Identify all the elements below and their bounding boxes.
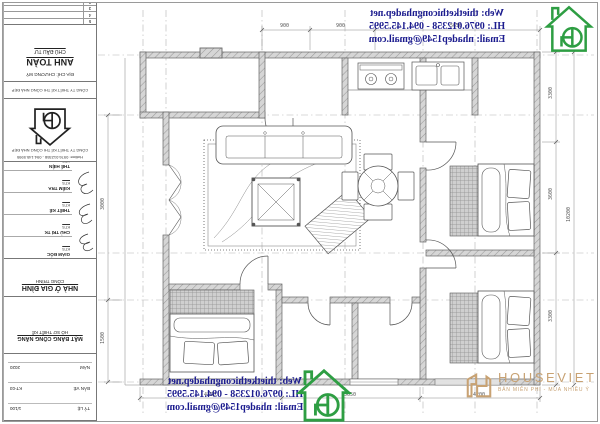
signature-role: GIÁM ĐỐC bbox=[6, 252, 70, 257]
revision-number: 2 bbox=[83, 3, 96, 5]
porch-edge bbox=[125, 58, 140, 385]
dim-label: 3600 bbox=[548, 188, 554, 200]
dim-label: 1500 bbox=[100, 332, 106, 344]
category-label: CÔNG TRÌNH bbox=[4, 278, 96, 284]
signature-row: CHỦ TRÌ TK KTS bbox=[4, 214, 72, 236]
investor-name: ANH TOÀN bbox=[4, 57, 96, 67]
logo-caption: CÔNG TY THIẾT KẾ THI CÔNG NHÀ ĐẸP bbox=[4, 147, 96, 154]
company-bar: CÔNG TY THIẾT KẾ THI CÔNG NHÀ ĐẸP bbox=[4, 82, 96, 99]
revision-row: 3 bbox=[4, 5, 96, 11]
revision-number: 3 bbox=[83, 6, 96, 11]
field-label: TỶ LỆ bbox=[77, 405, 90, 411]
field-value: KT-03 bbox=[10, 384, 22, 390]
drawing-name-section: MẶT BẰNG CÔNG NĂNG HỒ SƠ THIẾT KẾ bbox=[4, 297, 96, 354]
signature-row: GIÁM ĐỐC KTS bbox=[4, 236, 72, 258]
field-label: NĂM bbox=[80, 364, 90, 370]
coffee-table bbox=[252, 178, 300, 226]
signature-role: KIỂM TRA bbox=[6, 186, 70, 191]
signature-row: KIỂM TRA KTS bbox=[4, 170, 72, 192]
revision-table: 5 4 3 2 1 NỘI DUNG SỬA ĐỔI bbox=[4, 3, 96, 25]
watermark-web: Web: thietkethicongnhadep.net bbox=[330, 7, 544, 20]
field-value: 1/100 bbox=[10, 405, 21, 411]
investor-address: ĐỊA CHỈ: CHƯƠNG MỸ bbox=[4, 71, 96, 77]
signature-role: THIẾT KẾ bbox=[6, 208, 70, 213]
stove-icon bbox=[358, 63, 404, 89]
field-label: BẢN VẼ bbox=[73, 384, 90, 390]
dim-label: 3300 bbox=[548, 87, 554, 99]
company-logo-section: Hotline: 0976.012358 - 094.145.5995 CÔNG… bbox=[4, 99, 96, 162]
drawing-name: MẶT BẰNG CÔNG NĂNG bbox=[4, 335, 96, 341]
revision-row: 4 bbox=[4, 11, 96, 17]
bed-2 bbox=[450, 291, 534, 363]
company-house-logo-icon bbox=[28, 107, 72, 147]
dim-label: 3300 bbox=[548, 310, 554, 322]
revision-number: 5 bbox=[83, 19, 96, 24]
title-block-fields: TỶ LỆ1/100 BẢN VẼKT-03 NĂM2020 bbox=[4, 354, 96, 421]
signature-role: CHỦ TRÌ TK bbox=[6, 230, 70, 235]
logo-caption: Hotline: 0976.012358 - 094.145.5995 bbox=[4, 154, 96, 161]
investor-label: CHỦ ĐẦU TƯ bbox=[4, 48, 96, 54]
drawing-sheet: 900 900 5650 3300 3600 3300 10200 4350 5… bbox=[0, 0, 600, 424]
revision-row: 5 bbox=[4, 18, 96, 24]
houseviet-brand: HOUSEVIET BẢN MIỄN PHÍ - MUA NHIỀU Ý bbox=[464, 371, 597, 401]
green-house-logo-icon bbox=[293, 367, 355, 424]
sink-icon bbox=[412, 62, 464, 90]
kitchen-counter bbox=[348, 62, 472, 90]
revision-row: 2 bbox=[4, 3, 96, 5]
company-name: CÔNG TY THIẾT KẾ THI CÔNG NHÀ ĐẸP bbox=[12, 87, 89, 92]
sofa bbox=[216, 126, 352, 164]
chaise bbox=[305, 190, 371, 254]
houseviet-logo-icon bbox=[464, 371, 494, 401]
watermark-hotline: HL: 0976.012358 - 094.145.5995 bbox=[330, 20, 544, 33]
project-section: NHÀ Ở GIA ĐÌNH CÔNG TRÌNH bbox=[4, 259, 96, 297]
project-name: NHÀ Ở GIA ĐÌNH bbox=[4, 284, 96, 291]
signature-scribbles-icon bbox=[72, 162, 96, 258]
field-value: 2020 bbox=[10, 364, 20, 370]
dim-label: 900 bbox=[280, 23, 289, 29]
green-house-logo-icon bbox=[544, 3, 594, 55]
revision-number: 4 bbox=[83, 12, 96, 17]
bed-3 bbox=[170, 290, 254, 372]
bed-1 bbox=[450, 164, 534, 236]
signature-row: THỂ HIỆN KTS bbox=[4, 162, 72, 170]
signature-role: THỂ HIỆN bbox=[6, 164, 70, 169]
signature-row: THIẾT KẾ KTS bbox=[4, 192, 72, 214]
investor-section: ĐỊA CHỈ: CHƯƠNG MỸ ANH TOÀN CHỦ ĐẦU TƯ bbox=[4, 25, 96, 82]
houseviet-tagline: BẢN MIỄN PHÍ - MUA NHIỀU Ý bbox=[498, 387, 597, 393]
watermark-top: Web: thietkethicongnhadep.net HL: 0976.0… bbox=[330, 7, 544, 47]
watermark-email: Email: nhadep1549@gmail.com bbox=[330, 33, 544, 46]
dim-label: 10200 bbox=[566, 207, 572, 222]
houseviet-name: HOUSEVIET bbox=[498, 371, 597, 384]
signature-table: GIÁM ĐỐC KTS CHỦ TRÌ TK KTS THIẾT KẾ KTS… bbox=[4, 162, 96, 259]
title-block: TỶ LỆ1/100 BẢN VẼKT-03 NĂM2020 MẶT BẰNG … bbox=[3, 3, 97, 421]
dim-label: 3000 bbox=[100, 198, 106, 210]
